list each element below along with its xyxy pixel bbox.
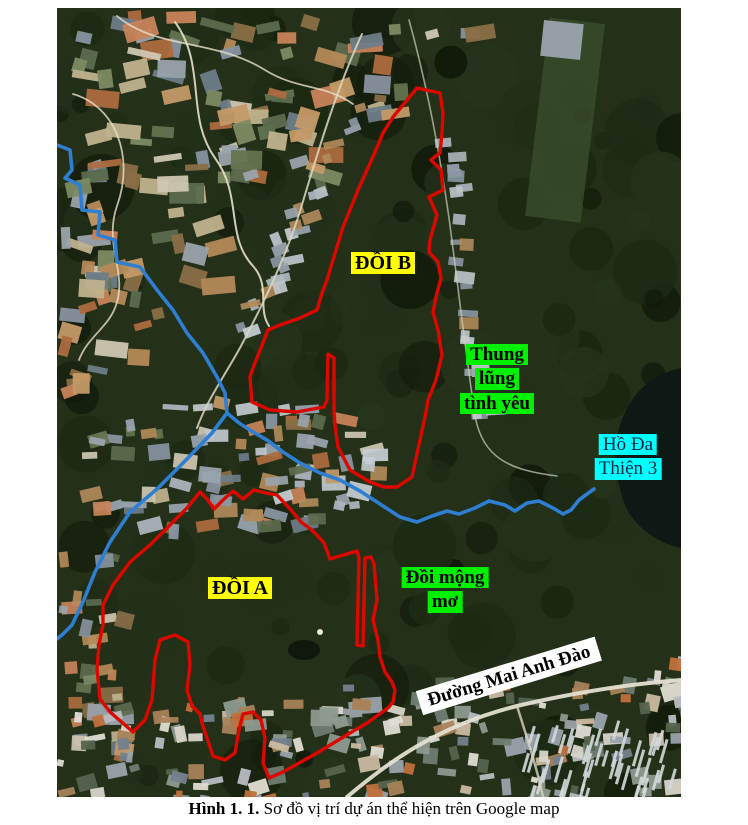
forest-blob (628, 209, 651, 232)
label-line: tình yêu (460, 393, 534, 414)
label-thung-lung-tinh-yeu: Thung lũng tình yêu (460, 344, 534, 414)
terrain-patch (64, 661, 77, 674)
forest-blob (450, 603, 516, 669)
terrain-patch (93, 501, 112, 516)
terrain-patch (457, 737, 468, 746)
terrain-patch (493, 738, 512, 746)
terrain-patch (81, 740, 96, 750)
terrain-patch (345, 432, 366, 438)
terrain-patch (621, 694, 631, 702)
terrain-patch (452, 214, 465, 226)
terrain-patch (86, 599, 102, 606)
terrain-patch (539, 702, 547, 709)
terrain-patch (576, 718, 594, 724)
label-doi-b-text: ĐỒI B (351, 252, 415, 274)
terrain-patch (59, 605, 68, 614)
forest-blob (393, 200, 415, 222)
building-block (540, 20, 584, 60)
terrain-patch (447, 170, 464, 183)
terrain-patch (383, 718, 401, 735)
label-line: Thung (466, 344, 528, 365)
terrain-patch (238, 453, 249, 462)
terrain-patch (506, 692, 515, 704)
terrain-patch (73, 373, 90, 394)
label-doi-a: ĐỒI A (208, 577, 272, 599)
terrain-patch (273, 425, 283, 442)
terrain-patch (185, 164, 209, 171)
terrain-patch (235, 439, 246, 450)
terrain-patch (85, 89, 119, 109)
terrain-patch (560, 713, 569, 722)
label-line: lũng (475, 368, 519, 389)
terrain-patch (203, 714, 214, 722)
terrain-patch (363, 449, 389, 462)
forest-blob (314, 347, 347, 380)
terrain-patch (157, 175, 189, 192)
label-line: mơ (428, 591, 462, 612)
terrain-patch (127, 349, 150, 367)
label-ho-da-thien-3: Hồ Đa Thiện 3 (595, 434, 662, 480)
figure: ĐỒI B Thung lũng tình yêu Hồ Đa Thiện 3 … (0, 0, 748, 825)
forest-blob (613, 240, 678, 305)
forest-blob (569, 227, 613, 271)
terrain-patch (97, 69, 114, 89)
terrain-patch (57, 759, 64, 767)
forest-blob (543, 303, 576, 336)
terrain-patch (296, 433, 315, 449)
label-line: Đồi mộng (402, 567, 489, 588)
figure-caption-number: Hình 1. 1. (189, 799, 260, 818)
terrain-patch (460, 238, 474, 251)
forest-blob (465, 522, 498, 555)
forest-blob (541, 585, 574, 618)
terrain-patch (539, 750, 548, 762)
label-doi-b: ĐỒI B (351, 252, 415, 274)
label-line: Thiện 3 (595, 458, 662, 479)
terrain-patch (349, 501, 360, 510)
forest-blob (645, 289, 664, 308)
terrain-patch (284, 700, 304, 709)
forest-blob (157, 289, 217, 349)
satellite-map-image (57, 8, 681, 797)
terrain-patch (319, 779, 331, 789)
forest-blob (271, 618, 289, 636)
terrain-patch (193, 783, 208, 790)
terrain-patch (154, 737, 164, 749)
terrain-patch (477, 759, 489, 774)
terrain-patch (455, 706, 471, 719)
terrain-patch (501, 778, 511, 795)
terrain-patch (82, 452, 97, 459)
terrain-patch (166, 11, 196, 24)
terrain-patch (188, 733, 203, 741)
terrain-patch (468, 753, 479, 767)
terrain-patch (351, 743, 361, 749)
terrain-patch (176, 791, 183, 797)
forest-blob (639, 566, 662, 589)
terrain-patch (78, 279, 105, 299)
forest-blob (559, 347, 610, 398)
terrain-patch (374, 94, 386, 102)
terrain-patch (299, 498, 319, 507)
label-line: Hồ Đa (599, 434, 657, 455)
terrain-patch (158, 717, 178, 723)
terrain-patch (74, 712, 83, 723)
terrain-patch (193, 403, 213, 411)
forest-blob (207, 646, 245, 684)
terrain-patch (111, 446, 135, 462)
terrain-patch (448, 152, 467, 163)
forest-blob (331, 285, 376, 330)
terrain-patch (389, 24, 401, 35)
terrain-patch (117, 738, 129, 751)
terrain-patch (243, 509, 263, 523)
terrain-patch (112, 693, 123, 701)
terrain-patch (257, 519, 282, 533)
terrain-patch (188, 764, 204, 779)
forest-blob (427, 460, 450, 483)
terrain-patch (152, 126, 175, 138)
terrain-patch (198, 466, 222, 484)
white-dot (317, 629, 323, 635)
satellite-map: ĐỒI B Thung lũng tình yêu Hồ Đa Thiện 3 … (57, 8, 681, 797)
terrain-patch (266, 131, 288, 151)
terrain-patch (295, 481, 305, 488)
forest-blob (594, 278, 622, 306)
figure-caption: Hình 1. 1. Sơ đồ vị trí dự án thể hiện t… (0, 799, 748, 819)
terrain-patch (312, 452, 330, 470)
figure-caption-text: Sơ đồ vị trí dự án thể hiện trên Google … (259, 799, 559, 818)
terrain-patch (201, 276, 236, 296)
label-doi-a-text: ĐỒI A (208, 577, 272, 599)
forest-blob (317, 572, 351, 606)
forest-blob (440, 280, 459, 299)
terrain-patch (205, 89, 222, 107)
terrain-patch (670, 733, 681, 744)
label-doi-mong-mo: Đồi mộng mơ (402, 567, 489, 613)
terrain-patch (372, 54, 393, 75)
terrain-patch (666, 723, 681, 733)
terrain-patch (157, 60, 186, 79)
terrain-patch (68, 697, 82, 709)
terrain-patch (449, 186, 463, 198)
terrain-patch (255, 447, 266, 455)
terrain-patch (148, 443, 171, 461)
forest-blob (357, 402, 386, 431)
terrain-patch (262, 710, 274, 716)
pond (288, 640, 320, 660)
terrain-patch (343, 684, 354, 691)
terrain-patch (59, 551, 70, 567)
terrain-patch (308, 513, 326, 525)
terrain-patch (231, 150, 263, 170)
terrain-patch (277, 32, 296, 44)
terrain-patch (639, 702, 651, 715)
terrain-patch (117, 162, 139, 186)
terrain-patch (363, 74, 391, 94)
terrain-patch (61, 227, 71, 249)
